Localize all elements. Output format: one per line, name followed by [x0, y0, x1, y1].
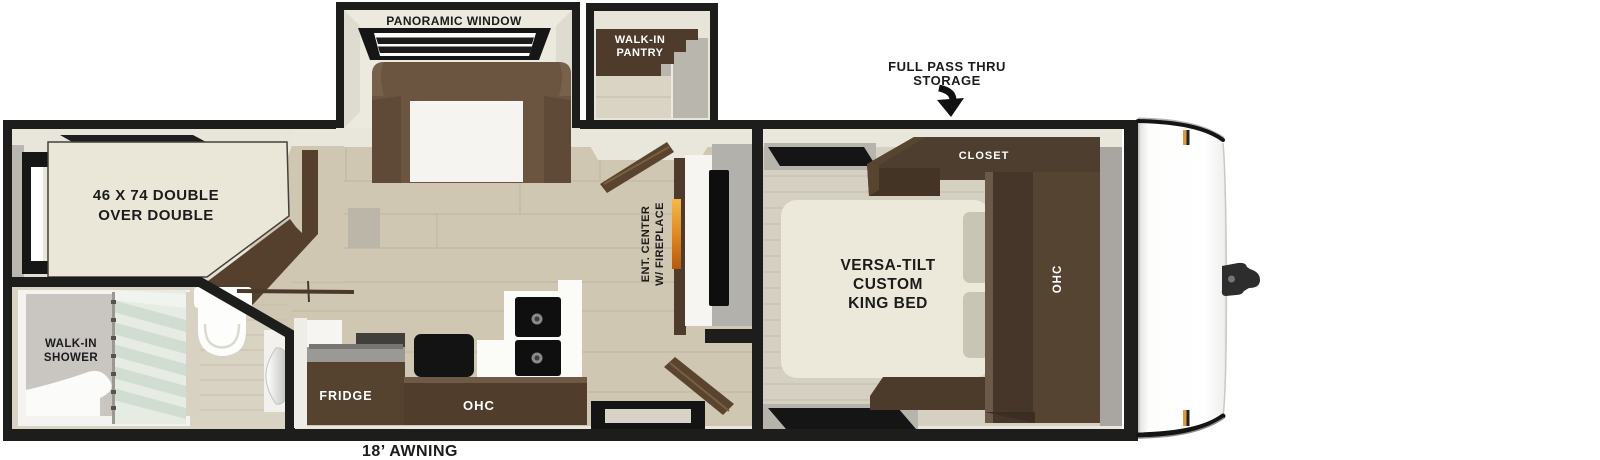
svg-text:ENT. CENTER: ENT. CENTER	[640, 206, 652, 283]
svg-text:KING BED: KING BED	[848, 295, 928, 312]
svg-text:VERSA-TILT: VERSA-TILT	[840, 257, 935, 274]
svg-text:18’ AWNING: 18’ AWNING	[362, 443, 458, 460]
svg-text:FRIDGE: FRIDGE	[319, 389, 372, 403]
svg-text:PANTRY: PANTRY	[617, 47, 664, 59]
svg-text:SHOWER: SHOWER	[44, 352, 98, 364]
svg-text:PANORAMIC WINDOW: PANORAMIC WINDOW	[386, 14, 522, 28]
svg-text:CUSTOM: CUSTOM	[853, 276, 923, 293]
svg-text:46 X 74 DOUBLE: 46 X 74 DOUBLE	[93, 187, 219, 204]
svg-text:CLOSET: CLOSET	[959, 150, 1010, 162]
svg-text:WALK-IN: WALK-IN	[45, 338, 97, 350]
svg-text:OHC: OHC	[463, 398, 495, 413]
svg-text:FULL PASS THRU: FULL PASS THRU	[888, 59, 1006, 74]
svg-text:OHC: OHC	[1052, 265, 1064, 294]
svg-text:STORAGE: STORAGE	[913, 73, 981, 88]
svg-text:W/ FIREPLACE: W/ FIREPLACE	[654, 202, 666, 286]
svg-text:OVER DOUBLE: OVER DOUBLE	[98, 207, 214, 224]
svg-text:WALK-IN: WALK-IN	[615, 34, 666, 46]
